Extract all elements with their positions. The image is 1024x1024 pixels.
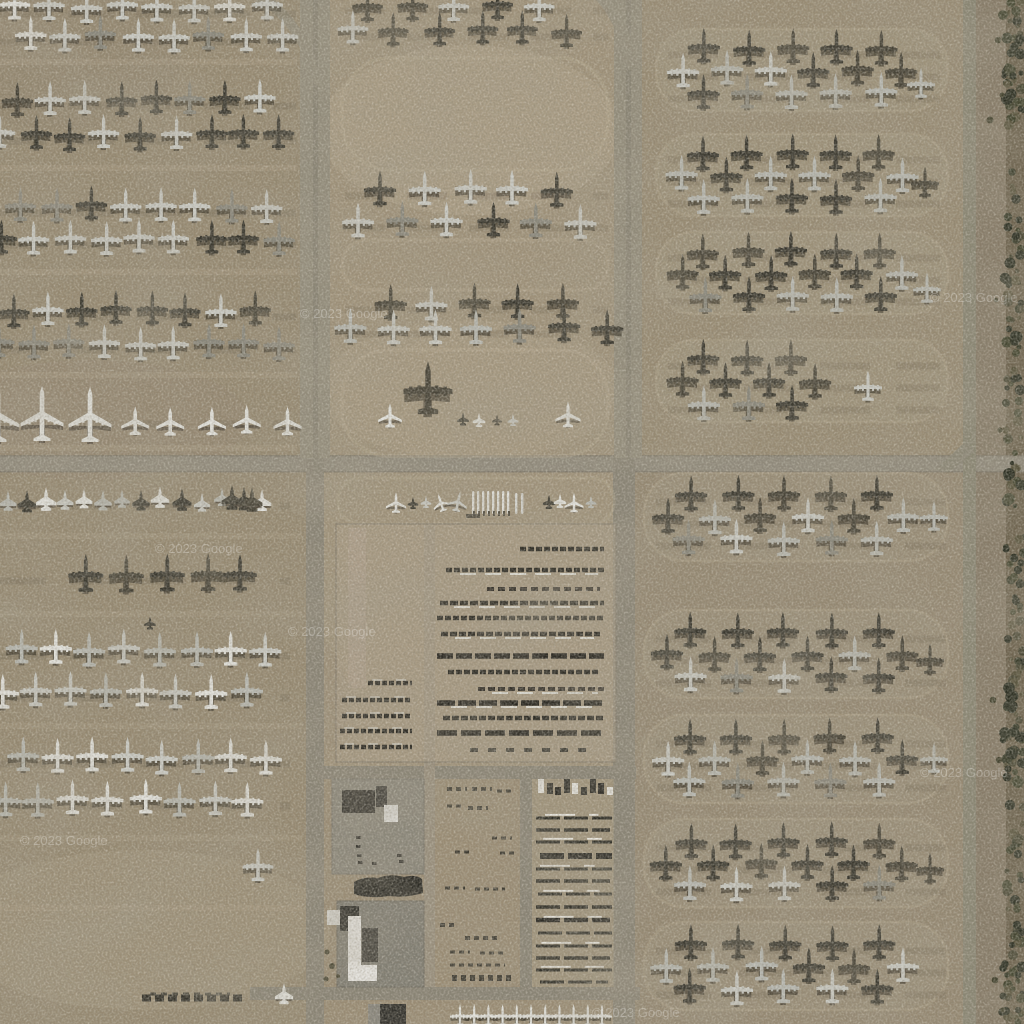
svg-text:© 2023 Google: © 2023 Google (592, 1005, 680, 1020)
svg-text:© 2023 Google: © 2023 Google (155, 541, 243, 556)
svg-text:© 2023 Google: © 2023 Google (920, 765, 1008, 780)
svg-text:© 2023 Google: © 2023 Google (20, 833, 108, 848)
svg-text:© 2023 Google: © 2023 Google (930, 290, 1018, 305)
svg-text:© 2023 Google: © 2023 Google (288, 624, 376, 639)
svg-text:© 2023 Google: © 2023 Google (300, 306, 388, 321)
